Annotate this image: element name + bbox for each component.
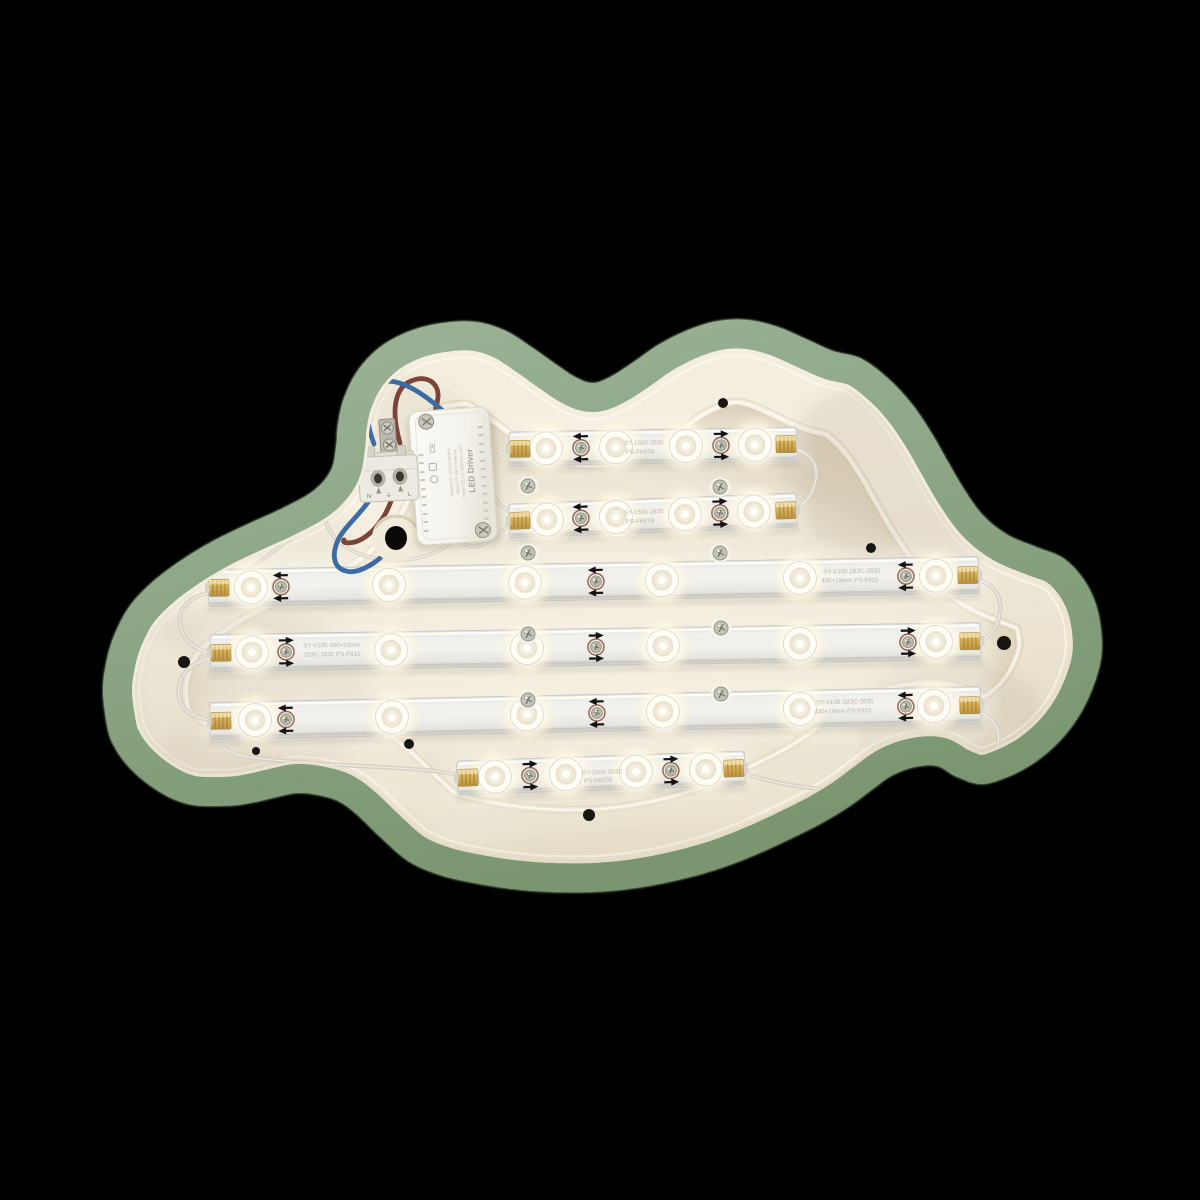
svg-text:SY-X100 400×19mm: SY-X100 400×19mm [303,642,360,650]
svg-text:400×19mm PS-F815: 400×19mm PS-F815 [814,707,872,715]
svg-text:CE: CE [428,443,438,454]
svg-text:PS-F697B: PS-F697B [626,448,655,455]
svg-text:400×19mm PS-F815: 400×19mm PS-F815 [821,577,879,585]
svg-text:N: N [367,494,372,500]
svg-text:PS-F697B: PS-F697B [626,517,655,525]
svg-text:SY-1500-2B35: SY-1500-2B35 [582,768,623,776]
svg-text:SY-X100 2B3C-2835: SY-X100 2B3C-2835 [823,568,881,576]
svg-text:⏚: ⏚ [386,492,392,499]
svg-text:SY-1500-2835: SY-1500-2835 [624,439,664,447]
svg-text:PS-F697B: PS-F697B [584,777,613,785]
svg-text:SY-X100 2B3C-2835: SY-X100 2B3C-2835 [816,698,874,706]
svg-text:283C-2835 PS-F815: 283C-2835 PS-F815 [304,651,361,659]
